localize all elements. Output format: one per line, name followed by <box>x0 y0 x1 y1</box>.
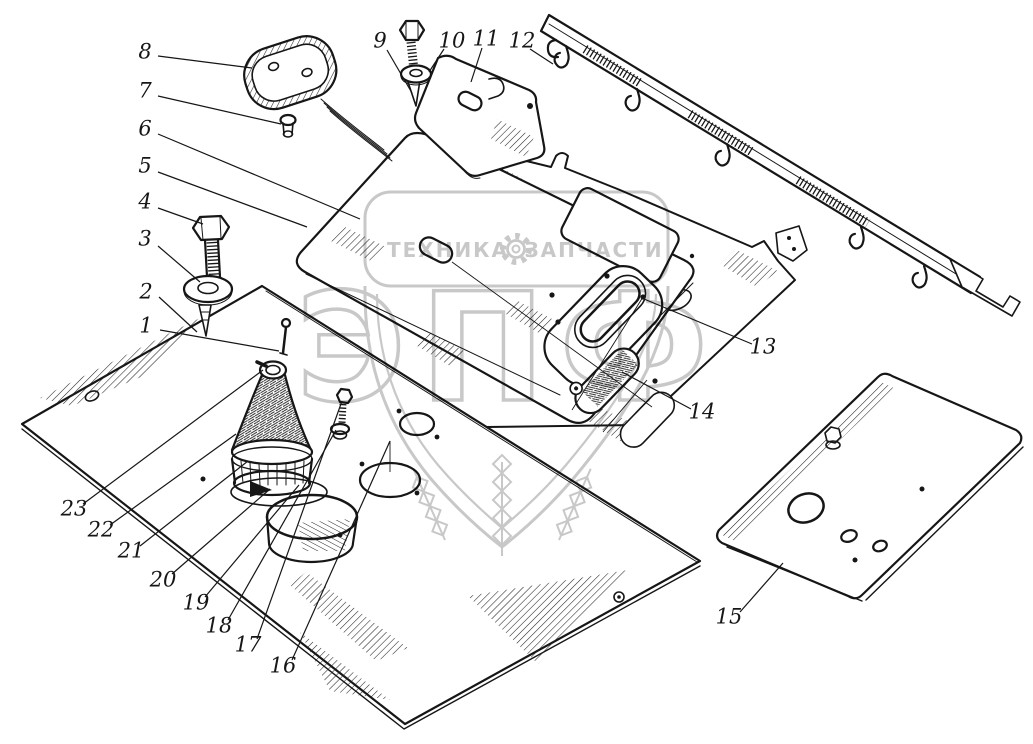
callout-7: 7 <box>138 79 152 103</box>
callout-23: 23 <box>60 497 88 521</box>
callout-6: 6 <box>138 117 151 141</box>
callout-1: 1 <box>139 314 152 338</box>
callout-22: 22 <box>87 518 115 542</box>
callout-14: 14 <box>689 400 716 424</box>
callout-5: 5 <box>138 154 151 178</box>
callout-21: 21 <box>117 539 145 563</box>
callout-12: 12 <box>509 29 536 53</box>
callout-15: 15 <box>716 605 743 629</box>
part-washer-3 <box>184 276 232 305</box>
callout-13: 13 <box>750 335 777 359</box>
callout-4: 4 <box>137 190 151 214</box>
diagram-canvas: ТЕХНИКА ЗАПЧАСТИ ЭПФ 1 <box>0 0 1033 744</box>
callout-16: 16 <box>270 654 297 678</box>
callout-3: 3 <box>138 227 151 251</box>
callout-8: 8 <box>138 40 151 64</box>
callout-20: 20 <box>149 568 177 592</box>
callout-10: 10 <box>439 29 466 53</box>
callout-18: 18 <box>206 614 233 638</box>
watermark-text-right: ЗАПЧАСТИ <box>524 238 663 262</box>
callout-11: 11 <box>473 27 500 51</box>
watermark-letters: ЭПФ <box>296 262 722 436</box>
callout-9: 9 <box>373 29 386 53</box>
callout-17: 17 <box>235 633 262 657</box>
watermark-text-left: ТЕХНИКА <box>387 238 509 262</box>
boot-clamp <box>232 440 312 464</box>
callout-2: 2 <box>138 280 152 304</box>
exploded-diagram: ТЕХНИКА ЗАПЧАСТИ ЭПФ 1 <box>0 0 1033 744</box>
callout-19: 19 <box>183 591 210 615</box>
